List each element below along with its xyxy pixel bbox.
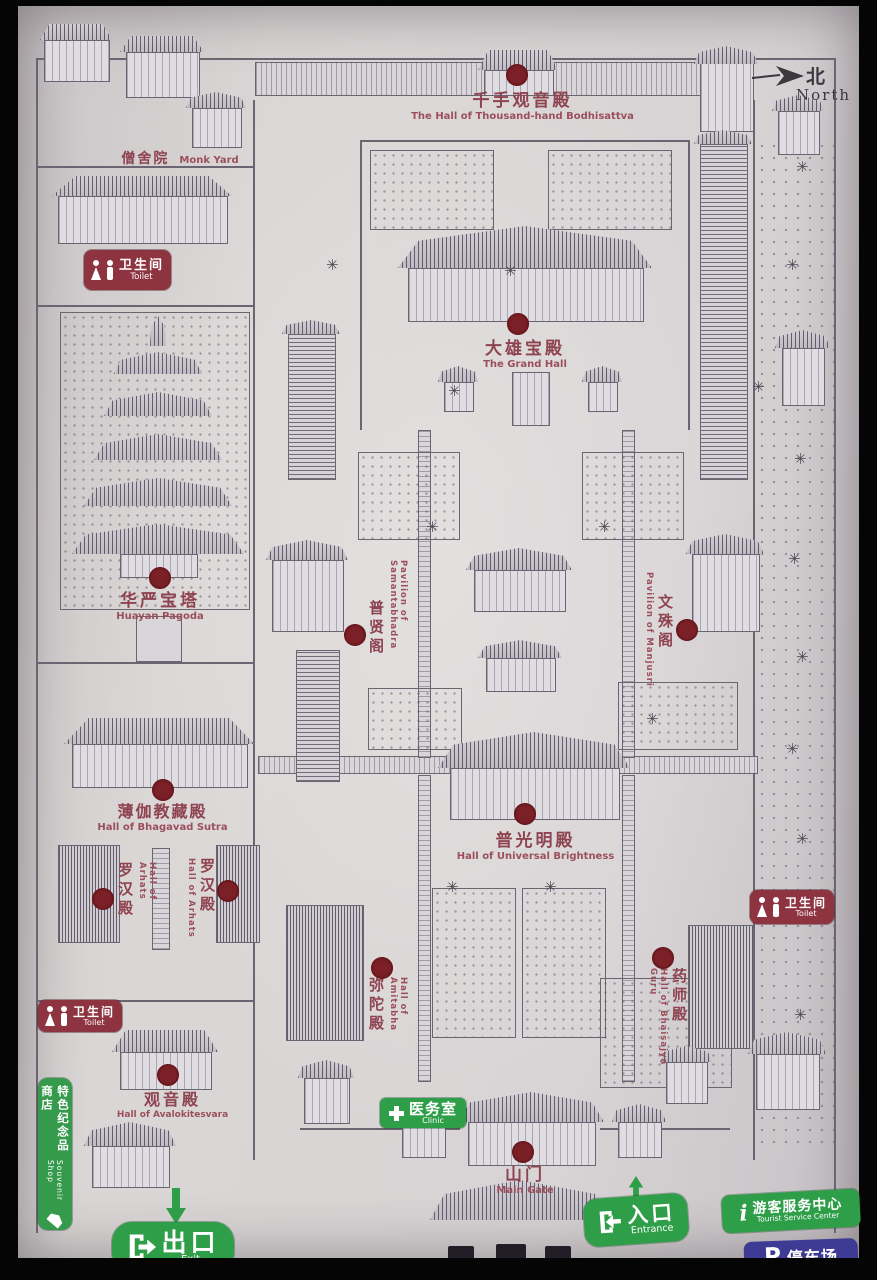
toilet-zh: 卫生间 <box>785 897 827 909</box>
poi-en: Huayan Pagoda <box>85 611 235 622</box>
poi-label-huayan-pagoda: 华严宝塔 Huayan Pagoda <box>85 586 235 622</box>
toilet-badge-left: 卫生间 Toilet <box>38 1000 122 1032</box>
grand-hall-drawing <box>408 268 644 322</box>
hall-drawing <box>58 196 228 244</box>
poi-en: The Grand Hall <box>440 359 610 370</box>
man-icon <box>771 897 780 917</box>
gate-drawing <box>618 1122 662 1158</box>
hall-drawing <box>112 1030 218 1052</box>
tree-icon <box>796 160 809 175</box>
tree-icon <box>796 832 809 847</box>
toilet-zh: 卫生间 <box>119 259 164 272</box>
poi-zh: 普贤阁 <box>366 600 387 695</box>
poi-zh: 山门 <box>480 1160 570 1185</box>
poi-zh: 药师殿 <box>669 968 690 1068</box>
poi-dot <box>157 1064 179 1086</box>
souvenir-en: Souvenir Shop <box>46 1160 64 1211</box>
compass-en: North <box>796 86 851 104</box>
poi-dot <box>506 64 528 86</box>
poi-zh: 罗汉殿 <box>197 858 218 938</box>
compass-zh: 北 <box>806 62 825 89</box>
entrance-badge: 入口 Entrance <box>582 1192 689 1247</box>
courtyard <box>432 888 516 1038</box>
courtyard <box>548 150 672 230</box>
poi-en: Hall of Bhaisajya Guru <box>648 968 668 1068</box>
tree-icon <box>426 520 439 535</box>
wall <box>360 140 362 430</box>
pavilion-drawing <box>778 111 820 155</box>
tree-icon <box>794 1008 807 1023</box>
pavilion-drawing <box>304 1078 350 1124</box>
wall <box>36 305 253 307</box>
pavilion-drawing <box>756 1054 820 1110</box>
tree-icon <box>448 384 461 399</box>
poi-zh: 大雄宝殿 <box>440 334 610 359</box>
stair-drawing <box>512 372 550 426</box>
toilet-en: Toilet <box>73 1019 115 1027</box>
poi-en: Hall of Arhats <box>137 862 157 937</box>
poi-label-monk-yard: 僧舍院 Monk Yard <box>100 148 260 168</box>
hall-drawing <box>64 718 254 744</box>
toilet-en: Toilet <box>785 910 827 918</box>
tower-drawing <box>296 650 340 782</box>
wall <box>253 100 255 1160</box>
poi-dot <box>344 624 366 646</box>
poi-en: Pavilion of Samantabhadra <box>388 560 408 695</box>
pavilion-drawing <box>782 348 825 406</box>
hall-drawing <box>126 52 200 98</box>
pavilion-drawing <box>272 560 344 632</box>
poi-zh: 华严宝塔 <box>85 586 235 611</box>
info-icon: i <box>739 1202 748 1224</box>
courtyard <box>618 682 738 750</box>
woman-icon <box>45 1006 54 1026</box>
hall-drawing <box>688 925 754 1049</box>
courtyard <box>368 688 462 750</box>
clinic-zh: 医务室 <box>409 1102 457 1117</box>
poi-zh: 文殊阁 <box>655 594 676 707</box>
tree-icon <box>786 742 799 757</box>
courtyard <box>522 888 606 1038</box>
pavilion-drawing <box>692 554 760 632</box>
man-icon <box>105 260 114 280</box>
poi-zh: 普光明殿 <box>448 826 623 851</box>
clinic-en: Clinic <box>409 1117 457 1125</box>
poi-dot <box>149 567 171 589</box>
wall <box>36 662 253 664</box>
pavilion-drawing <box>666 1062 708 1104</box>
tree-icon <box>794 452 807 467</box>
poi-label-amitabha: 弥陀殿 Hall of Amitabha <box>366 977 408 1059</box>
hall-drawing <box>92 1146 170 1188</box>
poi-label-universal-brightness: 普光明殿 Hall of Universal Brightness <box>448 826 623 862</box>
tower-drawing <box>700 144 748 480</box>
poi-dot <box>371 957 393 979</box>
tree-icon <box>544 880 557 895</box>
poi-en: Monk Yard <box>179 155 238 166</box>
toilet-en: Toilet <box>119 273 164 282</box>
temple-map-photo: 千手观音殿 The Hall of Thousand-hand Bodhisat… <box>0 0 877 1280</box>
poi-label-bhaisajya-guru: Hall of Bhaisajya Guru 药师殿 <box>648 968 690 1068</box>
poi-dot <box>676 619 698 641</box>
hall-drawing <box>44 40 110 82</box>
wall <box>360 140 690 142</box>
poi-en: Main Gate <box>480 1185 570 1196</box>
poi-en: Hall of Arhats <box>186 858 196 938</box>
tree-icon <box>752 380 765 395</box>
souvenir-zh: 特色纪念品商店 <box>39 1085 71 1157</box>
stair-drawing <box>136 616 182 662</box>
wall <box>36 58 38 1233</box>
poi-dot <box>92 888 114 910</box>
gift-icon <box>46 1210 65 1228</box>
tourist-center-badge: i 游客服务中心 Tourist Service Center <box>721 1188 861 1233</box>
exit-zh: 出口 <box>161 1230 219 1255</box>
pavilion-drawing <box>588 382 618 412</box>
poi-en: Hall of Avalokitesvara <box>110 1110 235 1120</box>
tree-icon <box>504 264 517 279</box>
wall <box>688 140 690 430</box>
courtyard <box>358 452 460 540</box>
poi-en: The Hall of Thousand-hand Bodhisattva <box>400 111 645 122</box>
hall-drawing <box>286 905 364 1041</box>
hall-drawing <box>486 658 556 692</box>
courtyard <box>370 150 494 230</box>
poi-zh: 薄伽教藏殿 <box>85 798 240 822</box>
tree-icon <box>786 258 799 273</box>
poi-label-grand-hall: 大雄宝殿 The Grand Hall <box>440 334 610 370</box>
tree-icon <box>326 258 339 273</box>
tree-icon <box>788 552 801 567</box>
hall-drawing <box>192 108 242 148</box>
poi-dot <box>652 947 674 969</box>
poi-dot <box>512 1141 534 1163</box>
poi-label-arhats-right: Hall of Arhats 罗汉殿 <box>186 858 218 938</box>
woman-icon <box>91 260 100 280</box>
courtyard <box>756 140 834 1150</box>
poi-label-manjusri: Pavilion of Manjusri 文殊阁 <box>644 572 676 707</box>
poi-dot <box>507 313 529 335</box>
pavilion-drawing <box>700 60 754 132</box>
poi-label-arhats-left: 罗汉殿 Hall of Arhats <box>115 862 157 937</box>
clinic-badge: 医务室 Clinic <box>380 1098 466 1128</box>
poi-en: Hall of Bhagavad Sutra <box>85 822 240 833</box>
poi-en: Hall of Universal Brightness <box>448 851 623 862</box>
poi-label-samantabhadra: 普贤阁 Pavilion of Samantabhadra <box>366 560 408 695</box>
poi-zh: 僧舍院 <box>121 151 169 167</box>
tower-drawing <box>288 334 336 480</box>
hall-drawing <box>40 24 112 40</box>
hall-drawing <box>474 570 566 612</box>
tree-icon <box>598 520 611 535</box>
man-icon <box>59 1006 68 1026</box>
poi-dot <box>514 803 536 825</box>
poi-zh: 罗汉殿 <box>115 862 136 937</box>
wall <box>834 58 836 1233</box>
poi-zh: 观音殿 <box>110 1086 235 1110</box>
poi-label-main-gate: 山门 Main Gate <box>480 1160 570 1196</box>
woman-icon <box>757 897 766 917</box>
tree-icon <box>646 712 659 727</box>
medical-cross-icon <box>389 1106 404 1121</box>
entrance-en: Entrance <box>631 1223 674 1235</box>
toilet-badge-right: 卫生间 Toilet <box>750 890 834 924</box>
cloister <box>418 775 431 1082</box>
poi-label-avalokitesvara: 观音殿 Hall of Avalokitesvara <box>110 1086 235 1120</box>
poi-en: Pavilion of Manjusri <box>644 572 654 707</box>
poi-dot <box>152 779 174 801</box>
toilet-badge-top: 卫生间 Toilet <box>84 250 171 290</box>
poi-label-thousand-hand: 千手观音殿 The Hall of Thousand-hand Bodhisat… <box>400 86 645 122</box>
poi-dot <box>217 880 239 902</box>
photo-border <box>0 1258 877 1280</box>
poi-zh: 弥陀殿 <box>366 977 387 1059</box>
tree-icon <box>796 650 809 665</box>
poi-zh: 千手观音殿 <box>400 86 645 111</box>
souvenir-badge: 特色纪念品商店 Souvenir Shop <box>38 1078 72 1230</box>
hall-drawing <box>120 36 204 52</box>
toilet-zh: 卫生间 <box>73 1006 115 1018</box>
entrance-door-icon <box>596 1207 624 1237</box>
poi-en: Hall of Amitabha <box>388 977 408 1059</box>
tree-icon <box>446 880 459 895</box>
poi-label-bhagavad-sutra: 薄伽教藏殿 Hall of Bhagavad Sutra <box>85 798 240 833</box>
hall-drawing <box>52 176 232 196</box>
